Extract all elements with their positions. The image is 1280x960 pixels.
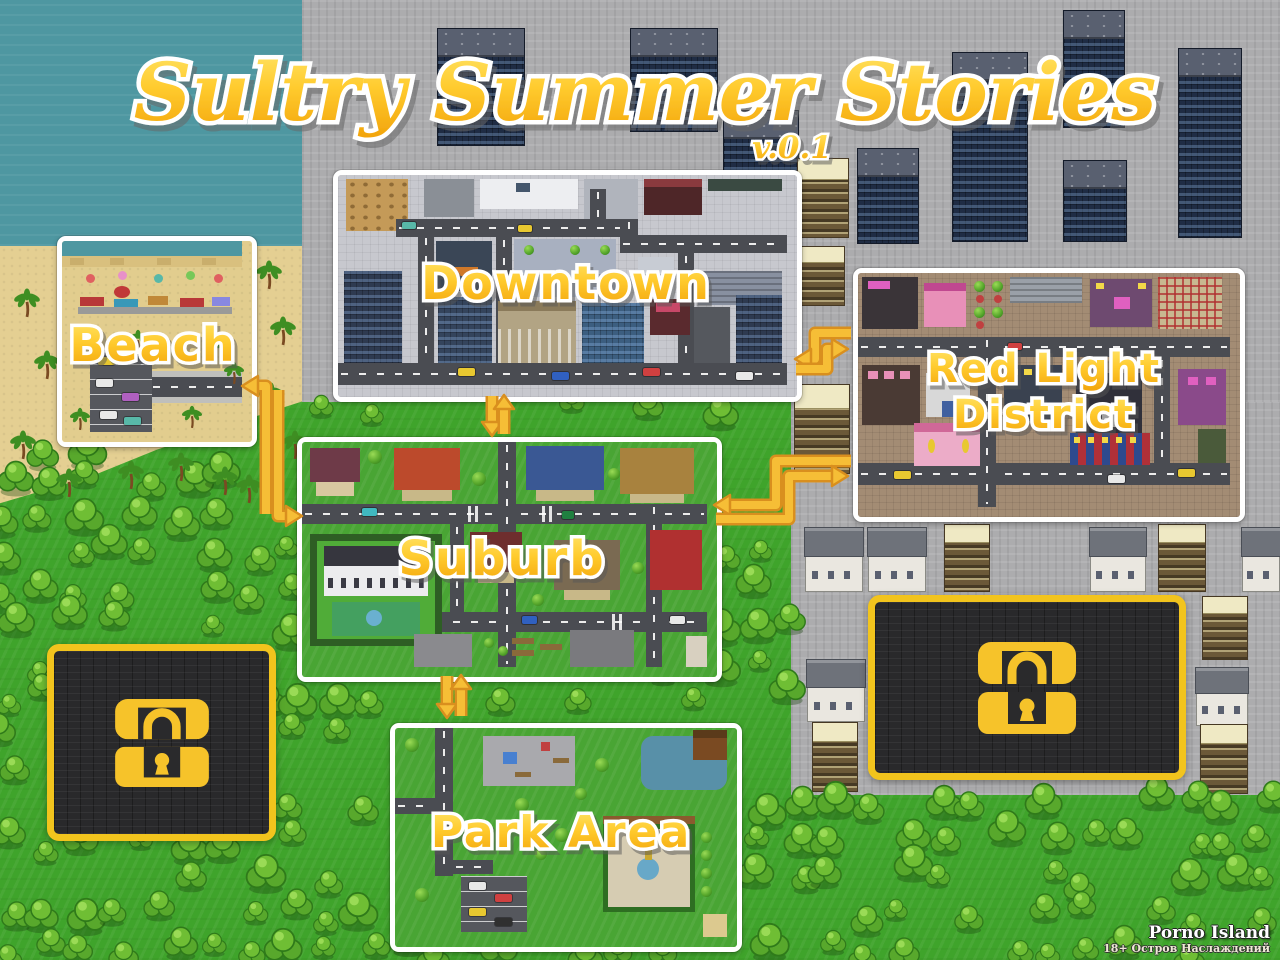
red-light-district-label-line2: District: [953, 392, 1135, 438]
route-arrows: [242, 333, 851, 718]
suburb-label: Suburb: [398, 531, 605, 587]
route-arrow: [278, 390, 286, 516]
route-arrow-head: [242, 376, 258, 396]
beach-label: Beach: [69, 318, 236, 372]
game-version: v.0.1: [752, 130, 832, 166]
watermark-subtitle: 18+ Остров Наслаждений: [1103, 943, 1270, 956]
world-map-screen: Sultry Summer Stories v.0.1 Beach Downto…: [0, 0, 1280, 960]
route-arrow-head: [832, 466, 848, 486]
downtown-label: Downtown: [421, 256, 711, 310]
game-title: Sultry Summer Stories: [134, 45, 1156, 139]
route-arrow-head: [832, 339, 848, 359]
route-arrow: [258, 386, 266, 514]
route-arrow-head: [451, 675, 471, 689]
park-area-label: Park Area: [431, 807, 691, 858]
route-arrow-head: [437, 704, 457, 718]
route-arrow-head: [286, 506, 302, 526]
red-light-district-label-line1: Red Light: [927, 346, 1161, 392]
route-arrow-head: [714, 495, 730, 515]
watermark-title: Porno Island: [1103, 924, 1270, 944]
watermark: Porno Island 18+ Остров Наслаждений: [1103, 924, 1270, 956]
